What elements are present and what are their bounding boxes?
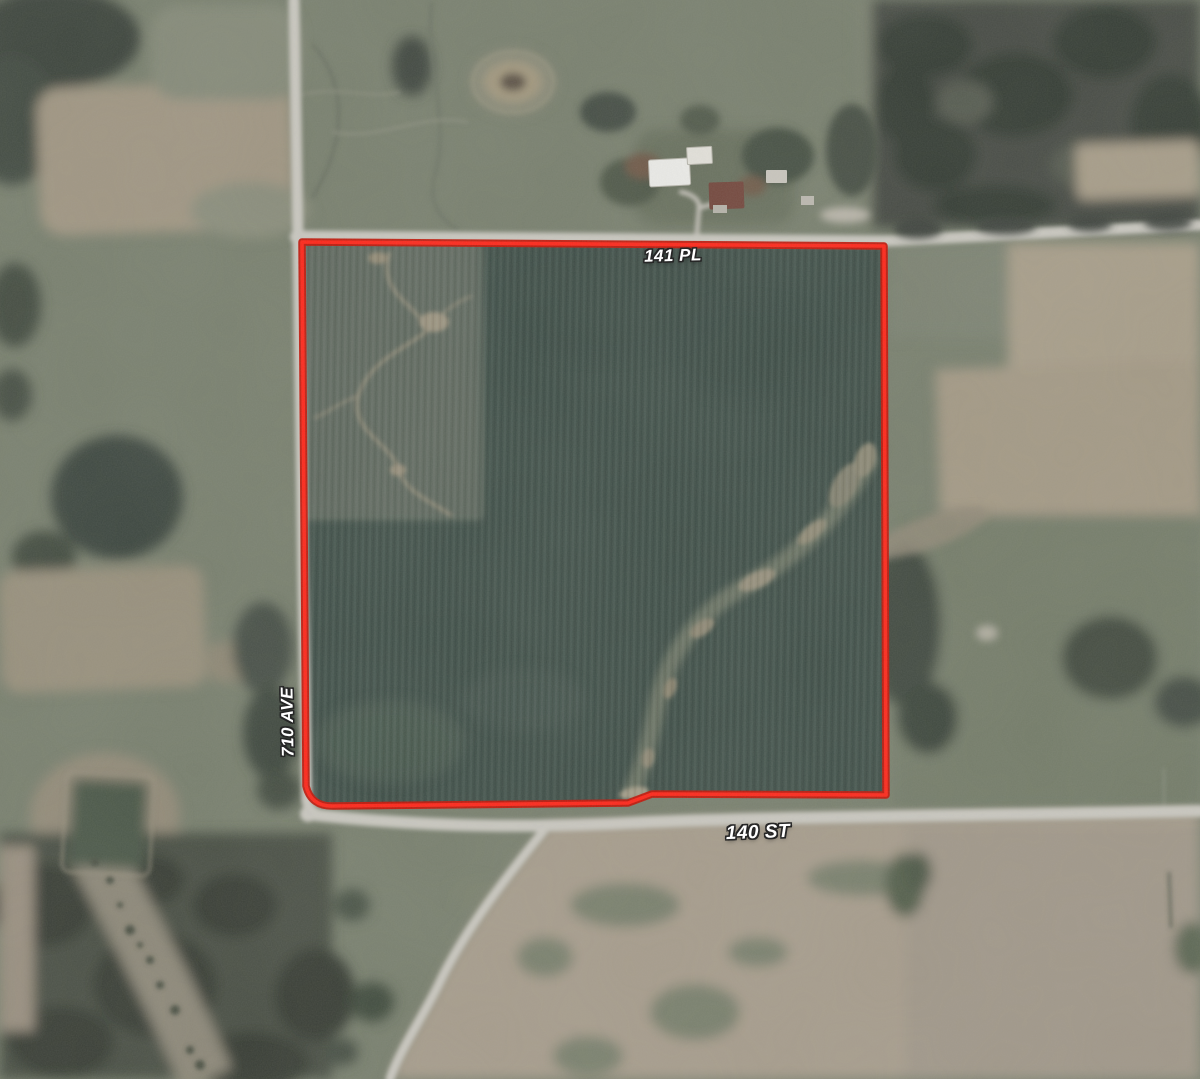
aerial-parcel-map: 141 PL 710 AVE 140 ST	[0, 0, 1200, 1079]
grain-overlay	[0, 0, 1200, 1079]
road-label-141-pl: 141 PL	[644, 245, 702, 267]
road-label-140-st: 140 ST	[726, 821, 791, 845]
aerial-map-canvas	[0, 0, 1200, 1079]
road-label-710-ave: 710 AVE	[277, 687, 298, 757]
